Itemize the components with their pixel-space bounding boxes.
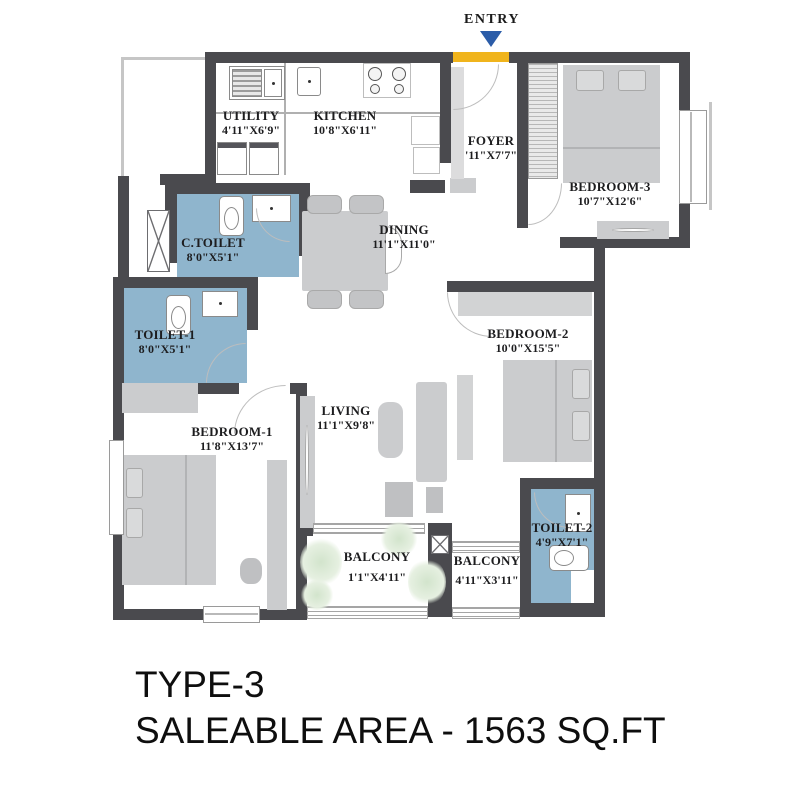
- room-label-bedroom2: BEDROOM-2 10'0"X15'5": [487, 327, 568, 355]
- room-name: BEDROOM-2: [487, 327, 568, 341]
- blanket-fold: [185, 455, 187, 585]
- room-name: LIVING: [317, 404, 375, 418]
- room-label-living: LIVING 11'1"X9'8": [317, 404, 375, 432]
- washing-machine-panel: [218, 143, 246, 148]
- room-label-dining: DINING 11'1"X11'0": [372, 223, 435, 251]
- room-dims: 11'1"X9'8": [317, 418, 375, 432]
- room-label-toilet2: TOILET-2 4'9"X7'1": [532, 521, 593, 549]
- wall: [509, 52, 690, 63]
- pillow: [572, 411, 590, 441]
- dining-chair: [307, 290, 342, 309]
- kitchen-counter: [411, 116, 440, 145]
- room-label-bedroom3: BEDROOM-3 10'7"X12'6": [569, 180, 650, 208]
- room-dims: 10'0"X15'5": [487, 341, 568, 355]
- window-line: [205, 613, 258, 615]
- window: [452, 541, 520, 553]
- wc-bowl: [171, 306, 186, 329]
- bedside-unit: [457, 375, 473, 460]
- window: [679, 110, 707, 204]
- room-name: BEDROOM-3: [569, 180, 650, 194]
- stove-burner: [368, 67, 382, 81]
- room-dims: 11'8"X13'7": [191, 439, 272, 453]
- room-name: FOYER: [465, 134, 517, 148]
- wall: [440, 63, 451, 163]
- wall: [113, 609, 205, 620]
- pouf: [385, 482, 413, 517]
- room-label-toilet1: TOILET-1 8'0"X5'1": [135, 328, 196, 356]
- wall: [447, 281, 605, 292]
- wall: [679, 52, 690, 112]
- dining-chair: [349, 195, 384, 214]
- room-label-utility: UTILITY 4'11"X6'9": [222, 109, 280, 137]
- sink-drainboard: [232, 69, 262, 97]
- wc-bowl: [224, 207, 239, 230]
- room-dims: 10'8"X6'11": [313, 123, 377, 137]
- room-name: KITCHEN: [313, 109, 377, 123]
- wall: [258, 609, 307, 620]
- wall: [165, 183, 310, 194]
- wall: [205, 52, 453, 63]
- balcony-railing: [452, 607, 520, 619]
- sink-drain-dot: [308, 80, 311, 83]
- room-dims: 4'11"X6'9": [222, 123, 280, 137]
- wall: [247, 288, 258, 330]
- room-dims: 8'0"X5'1": [135, 342, 196, 356]
- toilet2-door-clearance: [571, 570, 594, 603]
- coffee-table: [378, 402, 403, 458]
- shaft-x-icon: [432, 536, 448, 553]
- wall: [113, 277, 258, 288]
- dresser-mirror: [612, 228, 654, 232]
- shaft-x-icon: [148, 211, 169, 271]
- room-name: BALCONY: [344, 550, 410, 564]
- room-name: UTILITY: [222, 109, 280, 123]
- plan-type: TYPE-3: [135, 662, 666, 708]
- wall: [520, 478, 605, 489]
- side-table: [426, 487, 443, 513]
- tv: [305, 425, 309, 495]
- shaft: [431, 535, 449, 554]
- wardrobe: [122, 383, 198, 413]
- floor-plan: ENTRY: [0, 0, 800, 800]
- room-label-balcony1: BALCONY 1'1"X4'11": [344, 550, 410, 584]
- plant: [408, 558, 446, 606]
- exterior-ledge: [709, 102, 712, 210]
- wc-bowl: [554, 550, 574, 566]
- room-name: DINING: [372, 223, 435, 237]
- stove-burner: [392, 67, 406, 81]
- wall: [517, 63, 528, 183]
- wall: [113, 288, 124, 394]
- wall: [410, 180, 445, 193]
- wall: [205, 63, 216, 175]
- window-line: [690, 112, 692, 202]
- room-label-ctoilet: C.TOILET 8'0"X5'1": [181, 236, 245, 264]
- pouf: [240, 558, 262, 584]
- pillow: [572, 369, 590, 399]
- wall: [520, 603, 605, 617]
- basin-drain-dot: [577, 512, 580, 515]
- stove-burner: [394, 84, 404, 94]
- washing-machine-panel: [250, 143, 278, 148]
- exterior-ledge: [121, 57, 208, 60]
- plan-title: TYPE-3 SALEABLE AREA - 1563 SQ.FT: [135, 662, 666, 754]
- room-name: BEDROOM-1: [191, 425, 272, 439]
- blanket-fold: [555, 360, 557, 462]
- wardrobe-hatched: [528, 63, 558, 179]
- door-arc: [528, 183, 562, 225]
- plan-area: SALEABLE AREA - 1563 SQ.FT: [135, 708, 666, 754]
- room-dims: 1'1"X4'11": [344, 570, 410, 584]
- room-dims: '11"X7'7": [465, 148, 517, 162]
- room-dims: 10'7"X12'6": [569, 194, 650, 208]
- fridge: [450, 178, 476, 193]
- window: [109, 440, 124, 535]
- exterior-ledge: [121, 57, 124, 176]
- shaft: [147, 210, 170, 272]
- room-name: C.TOILET: [181, 236, 245, 250]
- room-name: TOILET-2: [532, 521, 593, 535]
- wall: [594, 292, 605, 617]
- wardrobe: [267, 460, 287, 610]
- entry-arrow-icon: [480, 31, 502, 47]
- dining-chair: [307, 195, 342, 214]
- kitchen-counter: [413, 147, 440, 174]
- pillow: [126, 508, 143, 538]
- pillow: [576, 70, 604, 91]
- room-name: TOILET-1: [135, 328, 196, 342]
- wall: [290, 383, 307, 394]
- blanket-fold: [563, 147, 660, 149]
- dining-chair: [349, 290, 384, 309]
- wall: [118, 176, 129, 284]
- pillow: [618, 70, 646, 91]
- room-label-bedroom1: BEDROOM-1 11'8"X13'7": [191, 425, 272, 453]
- room-dims: 11'1"X11'0": [372, 237, 435, 251]
- entry-door-strip: [453, 52, 509, 62]
- plant: [300, 580, 334, 610]
- sofa: [416, 382, 447, 482]
- pillow: [126, 468, 143, 498]
- stove-burner: [370, 84, 380, 94]
- basin-drain-dot: [219, 302, 222, 305]
- door-arc: [447, 292, 492, 337]
- room-label-kitchen: KITCHEN 10'8"X6'11": [313, 109, 377, 137]
- wall: [517, 180, 528, 228]
- room-dims: 8'0"X5'1": [181, 250, 245, 264]
- room-dims: 4'11"X3'11": [454, 573, 520, 587]
- entry-label: ENTRY: [464, 12, 520, 28]
- room-label-foyer: FOYER '11"X7'7": [465, 134, 517, 162]
- sink-drain-dot: [272, 82, 275, 85]
- room-dims: 4'9"X7'1": [532, 535, 593, 549]
- room-label-balcony2: BALCONY 4'11"X3'11": [454, 554, 520, 587]
- room-name: BALCONY: [454, 554, 520, 568]
- door-arc: [453, 64, 499, 110]
- wall: [520, 478, 531, 540]
